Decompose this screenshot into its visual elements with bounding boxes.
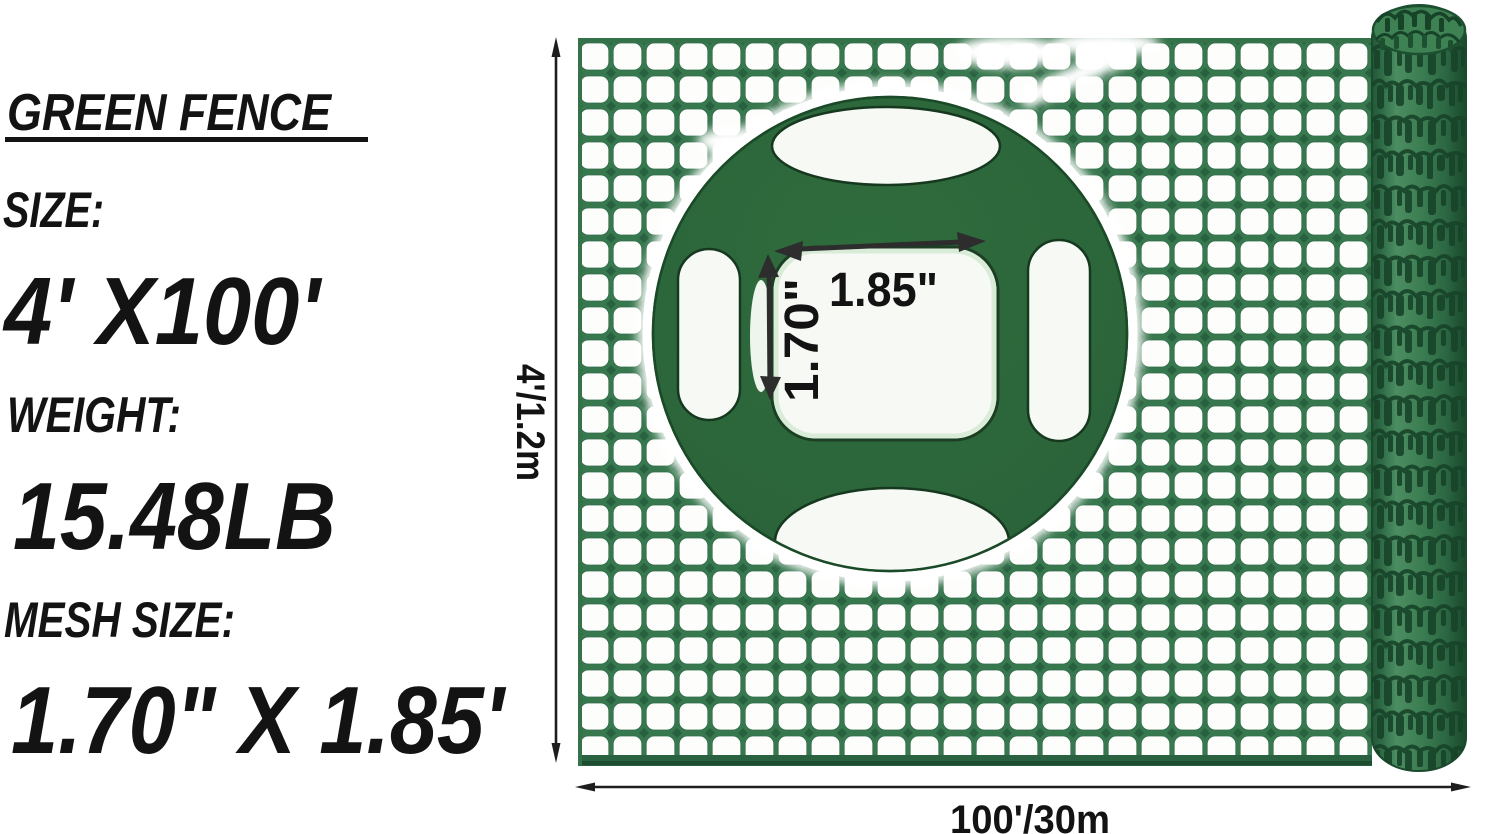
svg-text:1.70": 1.70" — [776, 278, 829, 402]
svg-text:1.70" X 1.85': 1.70" X 1.85' — [11, 667, 507, 774]
svg-text:4'/1.2m: 4'/1.2m — [508, 364, 552, 481]
svg-text:GREEN FENCE: GREEN FENCE — [7, 84, 332, 142]
svg-text:MESH SIZE:: MESH SIZE: — [4, 592, 235, 648]
svg-text:4' X100': 4' X100' — [2, 258, 323, 365]
svg-text:100'/30m: 100'/30m — [950, 798, 1110, 834]
svg-text:1.85": 1.85" — [829, 264, 938, 317]
svg-text:WEIGHT:: WEIGHT: — [7, 387, 181, 443]
svg-text:SIZE:: SIZE: — [3, 182, 104, 238]
svg-text:15.48LB: 15.48LB — [13, 463, 336, 570]
